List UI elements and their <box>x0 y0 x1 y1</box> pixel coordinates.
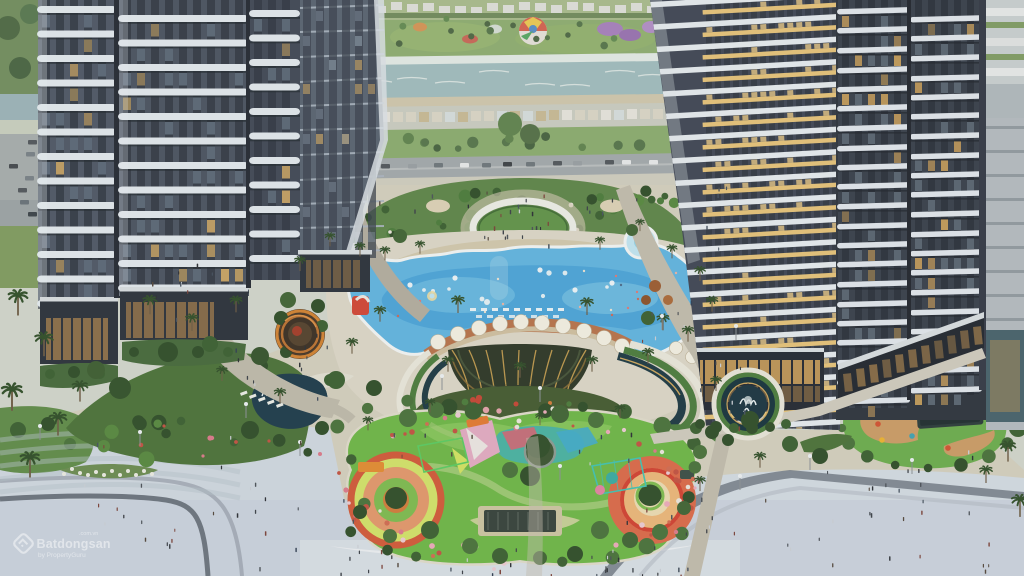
svg-text:Batdongsan: Batdongsan <box>37 537 111 551</box>
svg-text:.com.vn: .com.vn <box>79 531 98 537</box>
svg-text:by PropertyGuru: by PropertyGuru <box>38 552 86 559</box>
